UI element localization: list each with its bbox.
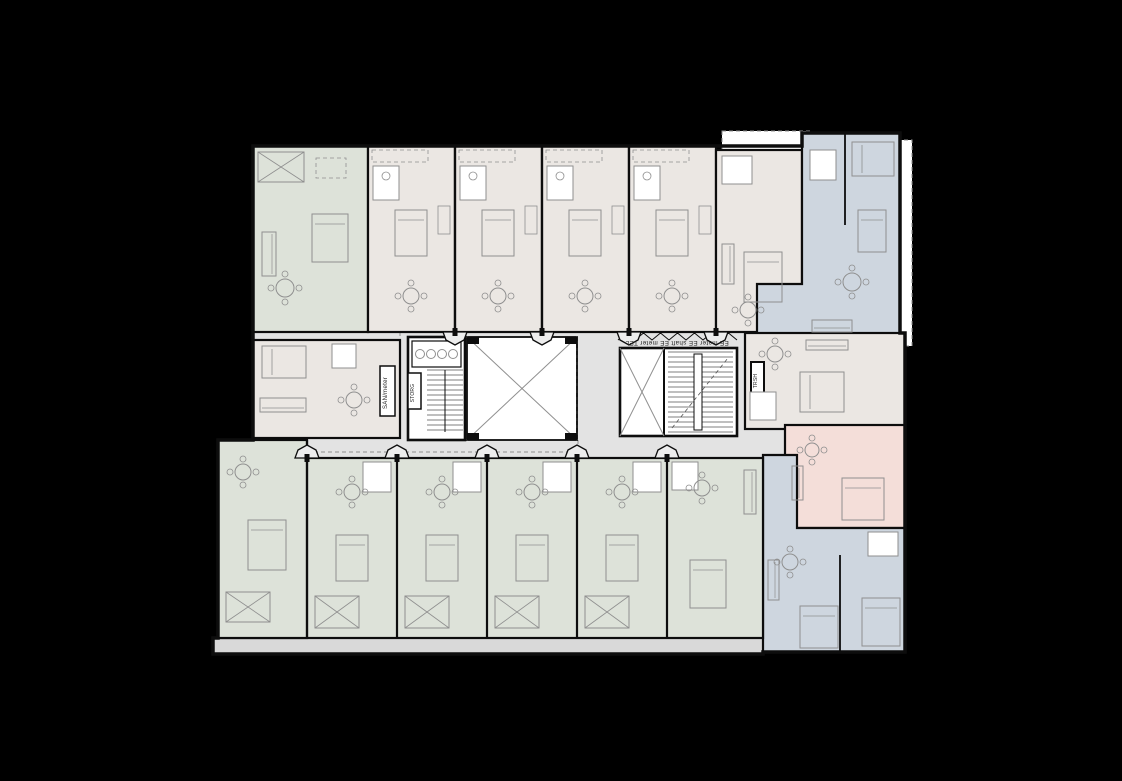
door-icon bbox=[627, 328, 632, 336]
storage-label: STORG bbox=[410, 384, 416, 403]
bathroom-pod bbox=[633, 462, 661, 492]
plan-layers bbox=[213, 131, 912, 654]
bathroom-pod bbox=[722, 156, 752, 184]
bathroom-pod bbox=[868, 532, 898, 556]
balcony bbox=[213, 638, 763, 654]
floor-plan-svg: SAN/meter STORG TRSH EE meter EE shaft E… bbox=[0, 0, 1122, 781]
san-meter-label: SAN/meter bbox=[383, 377, 389, 409]
door-icon bbox=[575, 454, 580, 462]
door-icon bbox=[453, 328, 458, 336]
unit-beige-midleft bbox=[253, 340, 400, 438]
bathroom-pod bbox=[373, 166, 399, 200]
bathroom-pod bbox=[810, 150, 836, 180]
door-icon bbox=[665, 454, 670, 462]
bathroom-pod bbox=[634, 166, 660, 200]
bathroom-pod bbox=[547, 166, 573, 200]
door-icon bbox=[395, 454, 400, 462]
wall-tab bbox=[565, 337, 577, 344]
bathroom-pod bbox=[332, 344, 356, 368]
wall-tab bbox=[467, 337, 479, 344]
bathroom-pod bbox=[460, 166, 486, 200]
trash-label: TRSH bbox=[753, 374, 759, 389]
bathroom-pod bbox=[750, 392, 776, 420]
stair-rail bbox=[694, 354, 702, 430]
door-icon bbox=[305, 454, 310, 462]
floor-plan-canvas: SAN/meter STORG TRSH EE meter EE shaft E… bbox=[0, 0, 1122, 781]
wall-tab bbox=[467, 433, 479, 440]
door-icon bbox=[485, 454, 490, 462]
bathroom-pod bbox=[543, 462, 571, 492]
core-utilities-label: EE meter EE shaft EE meter TEL bbox=[625, 339, 729, 346]
wall-tab bbox=[565, 433, 577, 440]
door-icon bbox=[714, 328, 719, 336]
bathroom-pod bbox=[363, 462, 391, 492]
door-icon bbox=[540, 328, 545, 336]
bathroom-pod bbox=[453, 462, 481, 492]
